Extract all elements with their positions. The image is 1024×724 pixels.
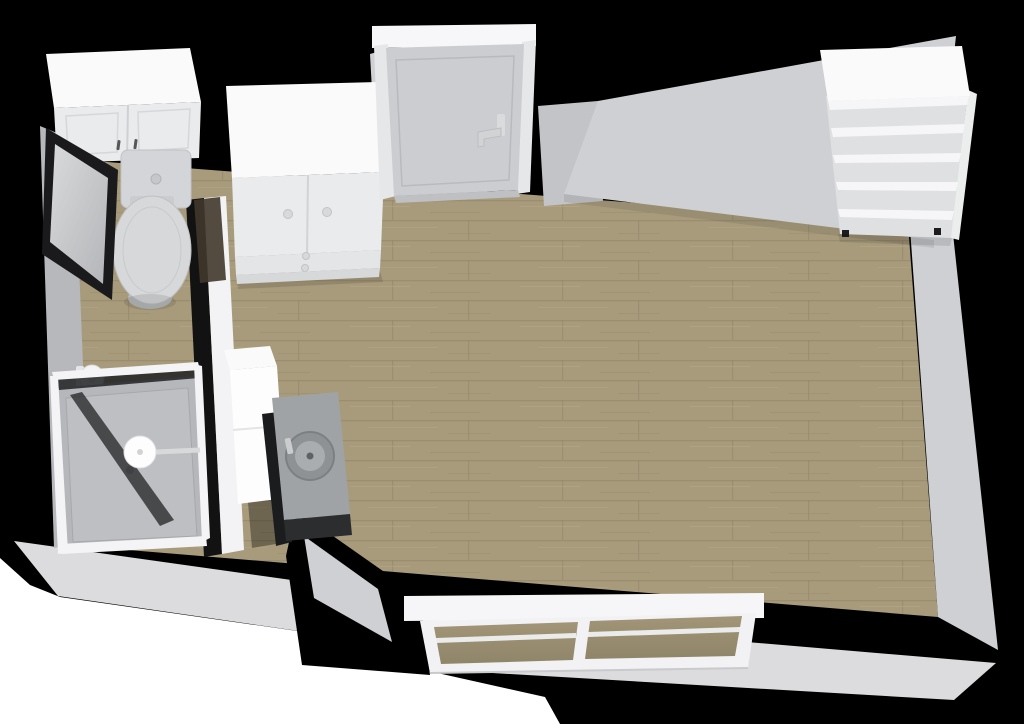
sideboard-drawer-knob <box>303 253 310 260</box>
sink-drain <box>307 453 314 460</box>
sideboard-door-seam <box>307 175 308 254</box>
toilet-shadow <box>124 294 176 310</box>
shower <box>50 362 210 554</box>
shower-head-center <box>137 449 143 455</box>
floorplan-stage <box>0 0 1024 724</box>
entry-door <box>372 24 536 203</box>
wall-cabinet-top <box>46 48 201 108</box>
window-pane-right <box>585 616 742 659</box>
toilet-lid <box>113 196 191 304</box>
tall-cabinet-top <box>224 346 277 370</box>
toilet <box>113 150 191 309</box>
shelf-unit-top <box>820 46 970 101</box>
shelf-foot <box>934 228 941 235</box>
sink-counter <box>262 392 352 546</box>
sideboard <box>226 82 384 289</box>
shelf-unit <box>820 46 977 240</box>
sideboard-drawer-knob <box>302 265 309 272</box>
window <box>404 593 764 673</box>
shower-arm <box>156 450 200 452</box>
shelf-board <box>836 182 958 191</box>
toilet-flush-button <box>151 174 161 184</box>
sideboard-top <box>226 82 384 178</box>
window-pane-left <box>434 622 578 664</box>
sideboard-knob <box>323 208 332 217</box>
sideboard-knob <box>284 210 293 219</box>
floorplan-render <box>0 0 1024 724</box>
